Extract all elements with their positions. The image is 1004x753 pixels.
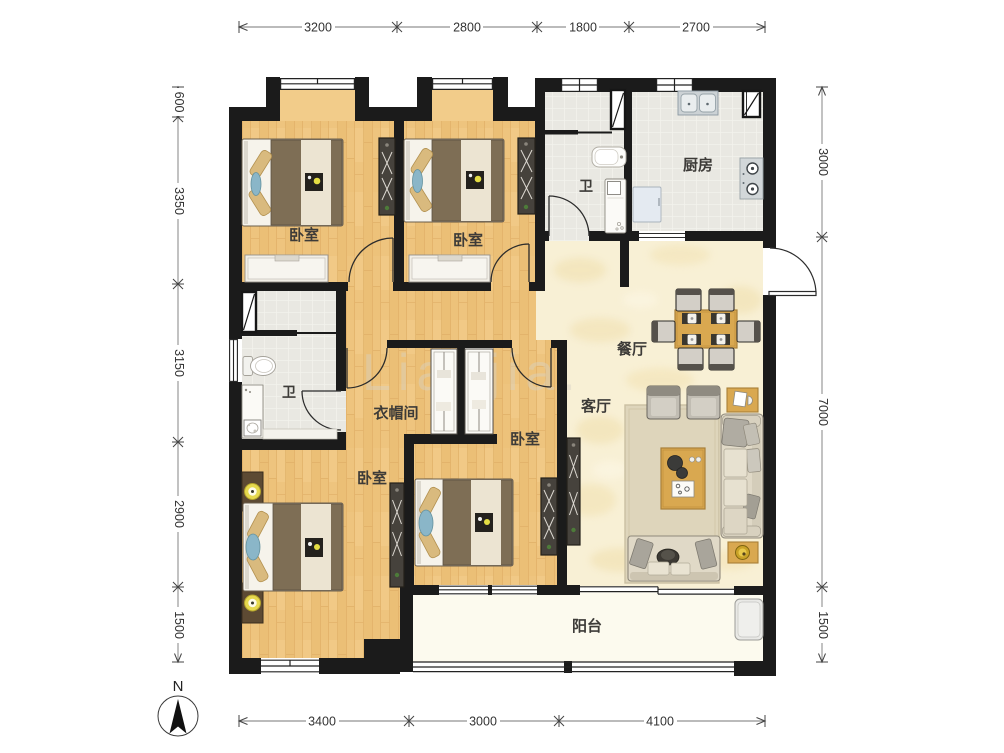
svg-text:3350: 3350 <box>172 187 186 215</box>
svg-text:7000: 7000 <box>816 398 830 426</box>
svg-text:2700: 2700 <box>682 21 710 35</box>
svg-text:卧室: 卧室 <box>453 231 483 249</box>
svg-text:1800: 1800 <box>569 21 597 35</box>
svg-text:1500: 1500 <box>172 611 186 639</box>
svg-text:3000: 3000 <box>469 715 497 729</box>
svg-text:卧室: 卧室 <box>289 226 319 244</box>
svg-text:600: 600 <box>172 92 186 113</box>
svg-text:3200: 3200 <box>304 21 332 35</box>
svg-text:卧室: 卧室 <box>510 430 540 448</box>
svg-text:餐厅: 餐厅 <box>617 340 647 358</box>
svg-text:3400: 3400 <box>308 715 336 729</box>
svg-text:3150: 3150 <box>172 349 186 377</box>
svg-text:4100: 4100 <box>646 715 674 729</box>
svg-text:衣帽间: 衣帽间 <box>373 404 418 422</box>
svg-text:1500: 1500 <box>816 611 830 639</box>
svg-text:2900: 2900 <box>172 500 186 528</box>
svg-text:厨房: 厨房 <box>683 156 713 174</box>
svg-text:卫: 卫 <box>282 384 296 400</box>
svg-text:卧室: 卧室 <box>357 469 387 487</box>
svg-text:N: N <box>173 678 184 695</box>
svg-text:阳台: 阳台 <box>572 617 602 635</box>
svg-text:客厅: 客厅 <box>580 397 611 415</box>
svg-text:3000: 3000 <box>816 148 830 176</box>
svg-text:卫: 卫 <box>579 178 593 194</box>
svg-text:2800: 2800 <box>453 21 481 35</box>
